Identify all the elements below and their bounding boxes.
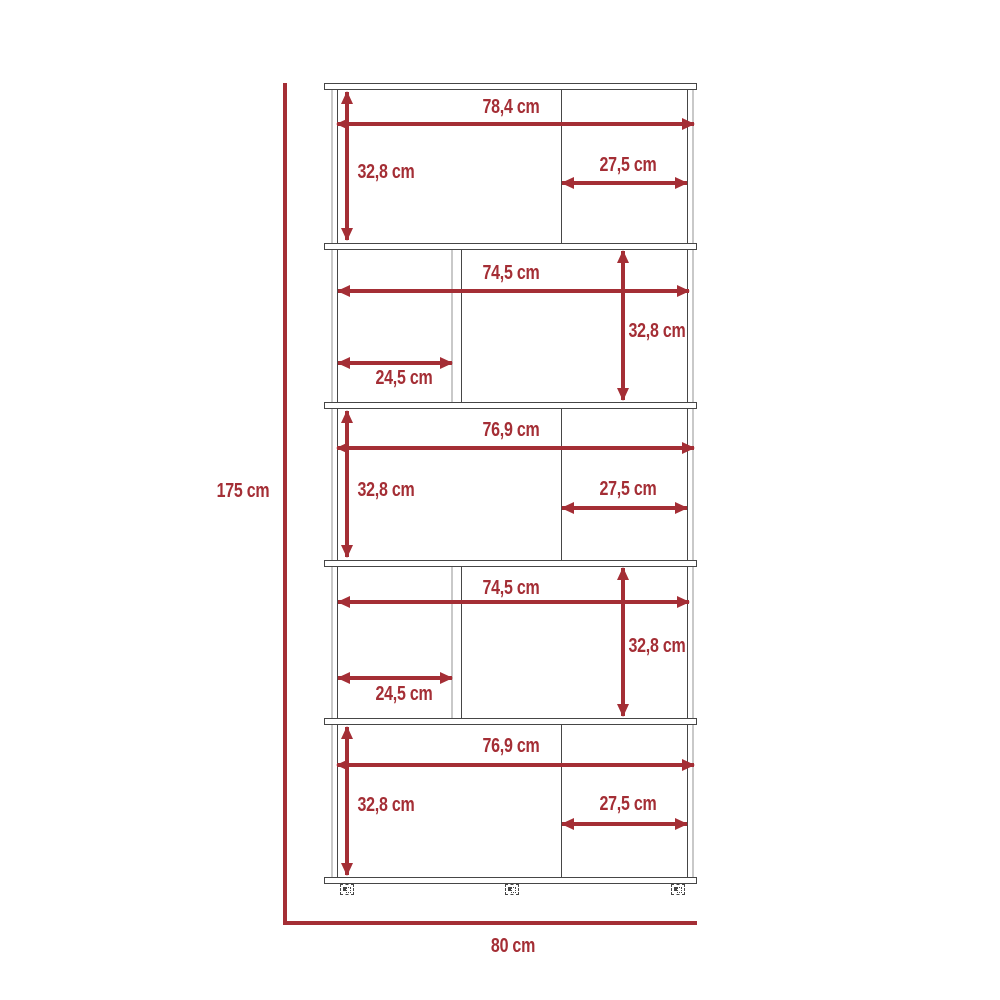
section-4-height-label: 32,8 cm <box>621 636 692 656</box>
overall-height-dimension-line <box>283 83 287 925</box>
shelf-board-bottom <box>324 877 697 884</box>
section-1-compartment-arrow <box>562 181 687 185</box>
side-wall-left-outer <box>331 725 333 877</box>
section-5-height-arrow <box>345 727 349 875</box>
section-4-compartment-arrow <box>338 676 452 680</box>
overall-width-label: 80 cm <box>485 936 540 956</box>
section-3-height-arrow <box>345 411 349 557</box>
side-wall-left-inner <box>337 409 338 560</box>
side-wall-right-inner <box>687 90 688 243</box>
section-5-width-label: 76,9 cm <box>475 736 546 756</box>
side-wall-left-inner <box>337 90 338 243</box>
section-5-divider <box>561 725 562 877</box>
side-wall-left-inner <box>337 250 338 402</box>
section-1-width-label: 78,4 cm <box>475 97 546 117</box>
section-4-width-arrow <box>338 600 689 604</box>
section-1-divider <box>561 90 562 243</box>
furniture-dimension-diagram: 175 cm 80 cm 78,4 cm 32,8 cm 27,5 cm 74,… <box>0 0 1000 1000</box>
section-3-compartment-arrow <box>562 506 687 510</box>
side-wall-right-outer <box>692 725 694 877</box>
overall-width-dimension-line <box>283 921 697 925</box>
caster-foot-icon <box>340 884 354 895</box>
section-1-height-arrow <box>345 92 349 240</box>
caster-foot-icon <box>505 884 519 895</box>
side-wall-left-outer <box>331 567 333 718</box>
section-4-divider-right-line <box>461 567 462 718</box>
section-5-width-arrow <box>337 763 694 767</box>
section-2-width-label: 74,5 cm <box>475 263 546 283</box>
shelf-board-3 <box>324 402 697 409</box>
side-wall-right-outer <box>692 90 694 243</box>
section-3-compartment-label: 27,5 cm <box>592 479 663 499</box>
section-2-height-label: 32,8 cm <box>621 321 692 341</box>
section-3-width-arrow <box>337 446 694 450</box>
side-wall-left-outer <box>331 409 333 560</box>
side-wall-right-inner <box>687 409 688 560</box>
section-4-divider-left-line <box>451 567 453 718</box>
section-5-height-label: 32,8 cm <box>350 795 421 815</box>
section-1-width-arrow <box>337 122 694 126</box>
section-1-compartment-label: 27,5 cm <box>592 155 663 175</box>
side-wall-left-inner <box>337 725 338 877</box>
section-4-compartment-label: 24,5 cm <box>368 684 439 704</box>
side-wall-right-outer <box>692 409 694 560</box>
section-2-divider-right-line <box>461 250 462 402</box>
side-wall-left-outer <box>331 250 333 402</box>
shelf-board-4 <box>324 560 697 567</box>
section-5-compartment-label: 27,5 cm <box>592 794 663 814</box>
section-1-height-label: 32,8 cm <box>350 162 421 182</box>
overall-height-label: 175 cm <box>210 481 276 501</box>
shelf-board-2 <box>324 243 697 250</box>
section-2-compartment-label: 24,5 cm <box>368 368 439 388</box>
side-wall-left-outer <box>331 90 333 243</box>
section-3-width-label: 76,9 cm <box>475 420 546 440</box>
section-2-divider-left-line <box>451 250 453 402</box>
side-wall-right-inner <box>687 725 688 877</box>
side-wall-left-inner <box>337 567 338 718</box>
caster-foot-icon <box>671 884 685 895</box>
shelf-board-5 <box>324 718 697 725</box>
section-2-width-arrow <box>338 289 689 293</box>
section-3-divider <box>561 409 562 560</box>
section-5-compartment-arrow <box>562 822 687 826</box>
section-2-compartment-arrow <box>338 361 452 365</box>
section-3-height-label: 32,8 cm <box>350 480 421 500</box>
shelf-board-top <box>324 83 697 90</box>
section-4-width-label: 74,5 cm <box>475 578 546 598</box>
